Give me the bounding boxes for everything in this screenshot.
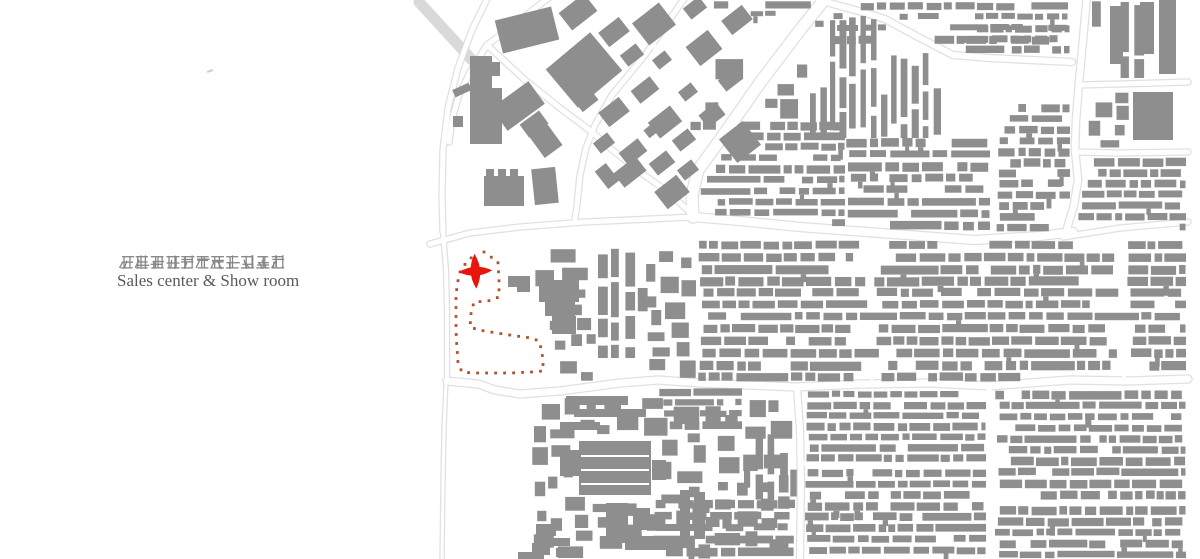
svg-text:Sales center & Show room: Sales center & Show room	[117, 271, 299, 290]
